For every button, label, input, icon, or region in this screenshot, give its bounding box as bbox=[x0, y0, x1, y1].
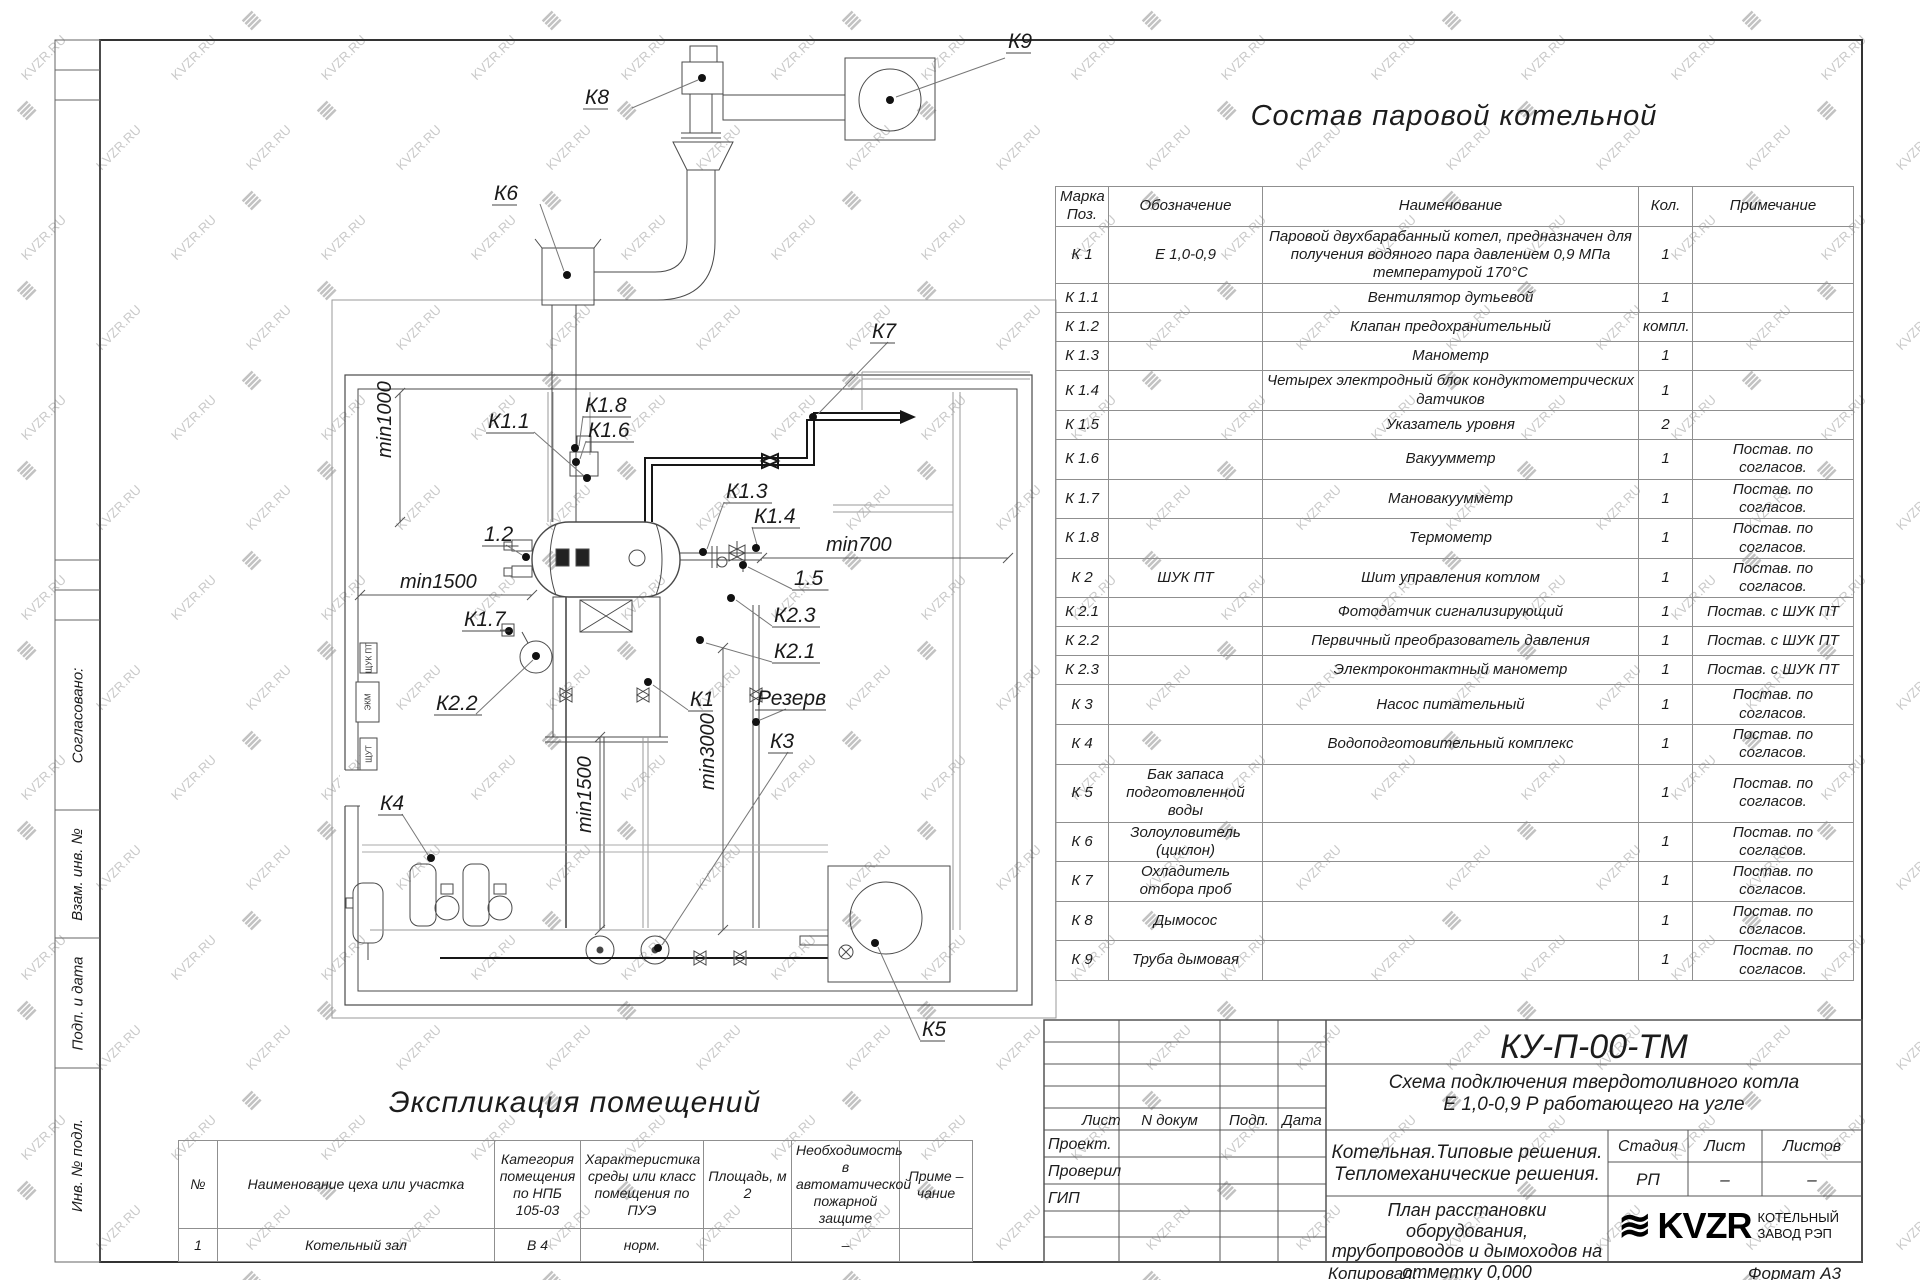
stage-header: Стадия bbox=[1608, 1138, 1688, 1156]
role-gip: ГИП bbox=[1048, 1190, 1080, 1208]
logo-waves-icon: ≋ bbox=[1618, 1206, 1652, 1246]
header-date: Дата bbox=[1278, 1112, 1326, 1129]
drawing-sheet: KVZR.RU≣KVZR.RUKVZR.RU≣KVZR.RUKVZR.RU≣KV… bbox=[0, 0, 1920, 1280]
copied-label: Копировал: bbox=[1328, 1264, 1417, 1280]
logo-text: KVZR bbox=[1658, 1208, 1752, 1244]
margin-box-label: Инв. № подл. bbox=[69, 1118, 86, 1211]
margin-box-label: Подп. и дата bbox=[69, 956, 86, 1050]
role-designed: Проект. bbox=[1048, 1136, 1112, 1154]
document-code: КУ-П-00-ТМ bbox=[1326, 1028, 1862, 1067]
header-sign: Подп. bbox=[1220, 1112, 1278, 1129]
subtitle-line-2: Е 1,0-0,9 Р работающего на угле bbox=[1326, 1094, 1862, 1116]
company-line-2: ЗАВОД РЭП bbox=[1758, 1226, 1839, 1242]
header-list: Лист bbox=[1082, 1112, 1121, 1129]
margin-box-подпидата: Подп. и дата bbox=[55, 938, 100, 1068]
sheet-title-line-1: План расстановки оборудования, bbox=[1330, 1200, 1604, 1241]
margin-box-label: Согласовано: bbox=[69, 667, 86, 763]
margin-box-инвподл: Инв. № подл. bbox=[55, 1068, 100, 1262]
role-checked: Проверил bbox=[1048, 1163, 1121, 1181]
company-line-1: КОТЕЛЬНЫЙ bbox=[1758, 1210, 1839, 1226]
sheets-value: – bbox=[1762, 1170, 1862, 1190]
company-logo: ≋ KVZR КОТЕЛЬНЫЙ ЗАВОД РЭП bbox=[1618, 1206, 1839, 1246]
sheet-header: Лист bbox=[1688, 1138, 1762, 1156]
margin-box-согласовано: Согласовано: bbox=[55, 620, 100, 810]
sheet-value: – bbox=[1688, 1170, 1762, 1190]
sheet-title-line-2: трубопроводов и дымоходов на bbox=[1330, 1241, 1604, 1262]
project-line-1: Котельная.Типовые решения. bbox=[1326, 1142, 1608, 1164]
header-ndoc: N докум bbox=[1119, 1112, 1220, 1129]
margin-box-взаминв: Взам. инв. № bbox=[55, 810, 100, 938]
margin-box-label: Взам. инв. № bbox=[69, 828, 86, 921]
project-line-2: Тепломеханические решения. bbox=[1326, 1164, 1608, 1186]
sheets-header: Листов bbox=[1762, 1138, 1862, 1156]
stage-value: РП bbox=[1608, 1170, 1688, 1190]
format-label: Формат А3 bbox=[1748, 1264, 1841, 1280]
subtitle-line-1: Схема подключения твердотоливного котла bbox=[1326, 1072, 1862, 1094]
